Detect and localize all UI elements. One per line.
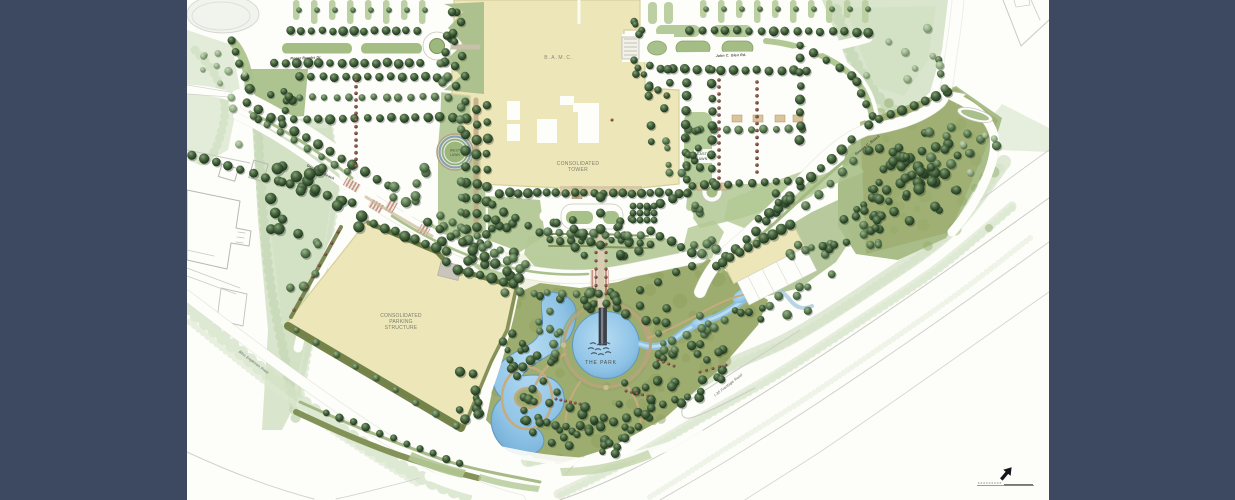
svg-text:B.A.M.C.: B.A.M.C.: [544, 55, 574, 61]
svg-text:STRUCTURE: STRUCTURE: [385, 325, 418, 331]
svg-text:TOWER: TOWER: [568, 167, 588, 173]
svg-text:LAWN: LAWN: [696, 157, 707, 161]
svg-text:LAWN: LAWN: [450, 153, 461, 157]
svg-text:EAST: EAST: [697, 152, 708, 156]
svg-text:WEST: WEST: [450, 149, 460, 153]
svg-text:THE PARK: THE PARK: [585, 360, 617, 366]
